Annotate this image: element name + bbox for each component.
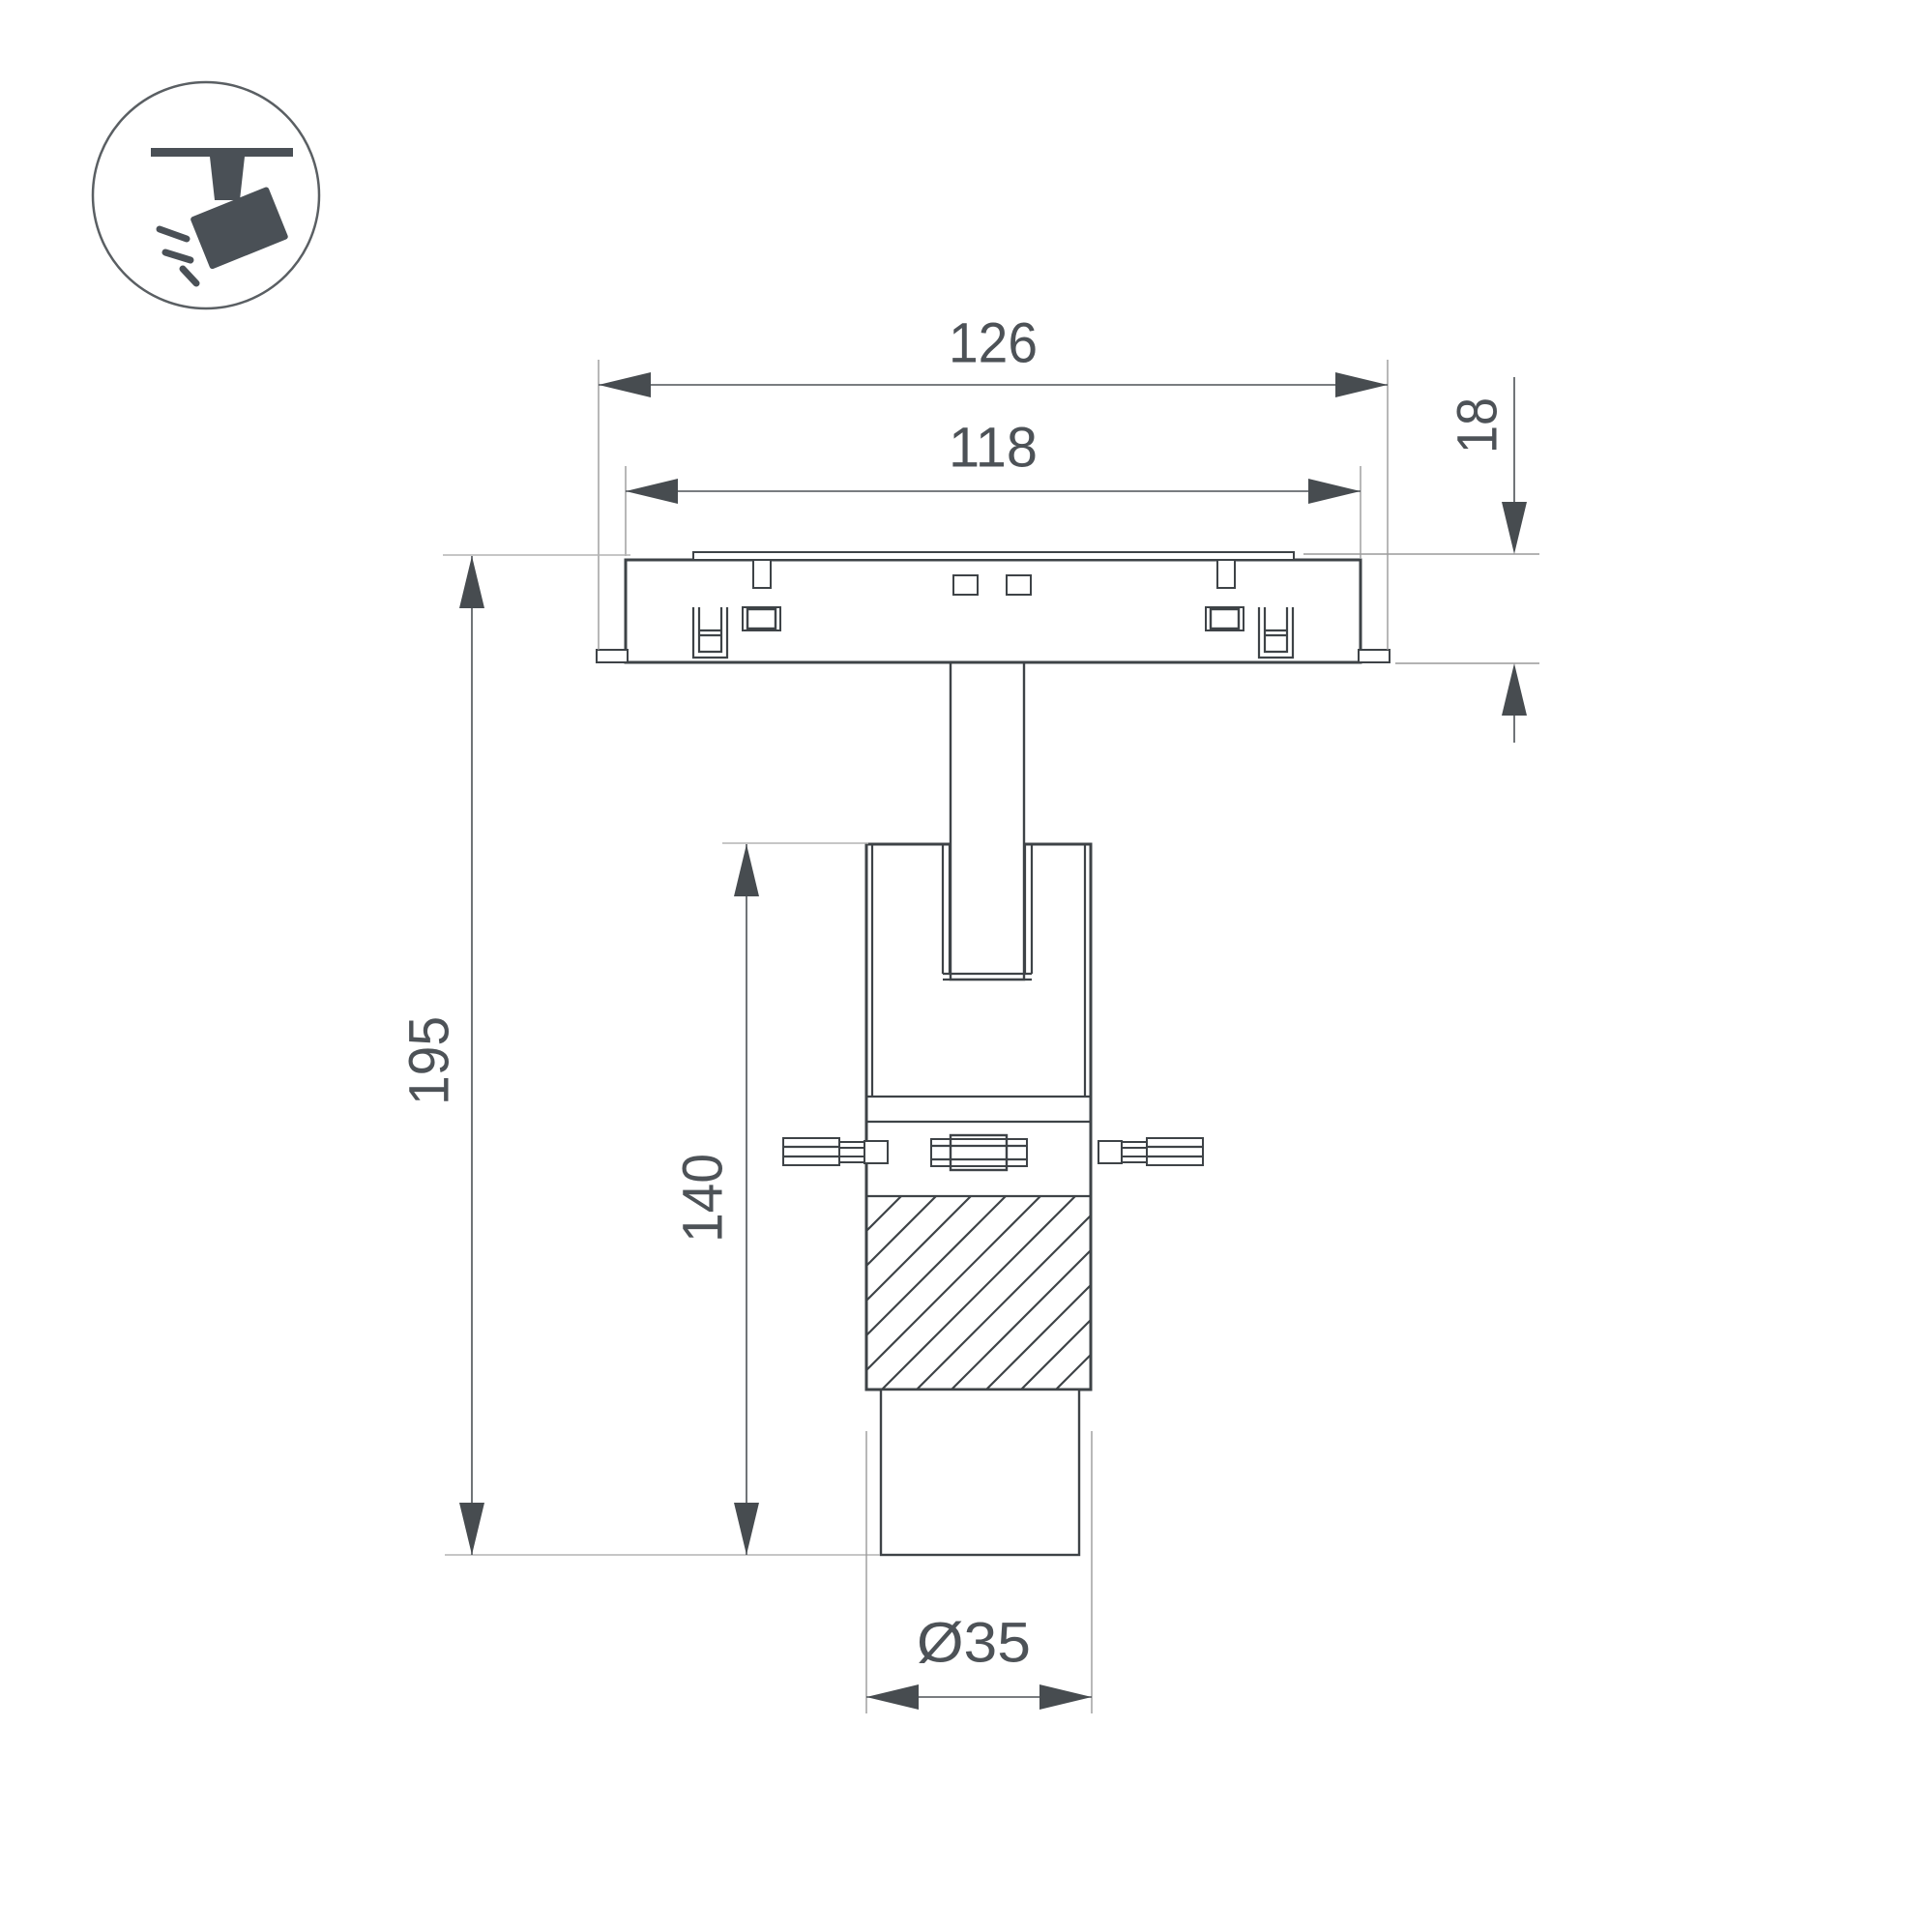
pivot-stem xyxy=(951,662,1024,980)
clamp-block xyxy=(931,1135,1027,1170)
adapter-tab-right xyxy=(1217,560,1235,588)
adapter-foot-left xyxy=(597,650,628,662)
adapter-vent-left xyxy=(953,575,978,595)
thumbscrew-left xyxy=(783,1138,888,1165)
arrowhead xyxy=(1502,502,1527,554)
dimension-118: 118 xyxy=(626,417,1361,505)
track-adapter xyxy=(597,552,1390,662)
track-light-dimension-drawing: 126 118 18 195 140 Ø35 xyxy=(0,0,1932,1932)
technical-drawing-page: 126 118 18 195 140 Ø35 xyxy=(0,0,1932,1932)
arrowhead xyxy=(626,479,678,504)
dim-label-18: 18 xyxy=(1447,397,1509,454)
arrowhead xyxy=(866,1684,919,1710)
thumbscrew-right xyxy=(1098,1138,1203,1165)
dim-label-195: 195 xyxy=(398,1016,461,1105)
track-spotlight-icon xyxy=(93,82,319,308)
icon-circle xyxy=(93,82,319,308)
arrowhead xyxy=(459,1503,484,1555)
arrowhead xyxy=(1308,479,1361,504)
dim-label-118: 118 xyxy=(949,417,1038,480)
dim-label-d35: Ø35 xyxy=(917,1612,1031,1675)
arrowhead xyxy=(734,844,759,896)
icon-ray-1 xyxy=(160,229,187,239)
lens-cylinder xyxy=(881,1390,1079,1555)
icon-ray-2 xyxy=(165,252,190,260)
dimension-d35: Ø35 xyxy=(866,1612,1092,1711)
arrowhead xyxy=(1502,663,1527,716)
arrowhead xyxy=(599,372,651,397)
dimension-126: 126 xyxy=(599,312,1388,398)
icon-light-head xyxy=(190,187,288,270)
arrowhead xyxy=(459,556,484,608)
dimension-140: 140 xyxy=(672,844,760,1555)
adapter-foot-right xyxy=(1359,650,1390,662)
icon-ray-3 xyxy=(183,269,196,283)
arrowhead xyxy=(1335,372,1388,397)
icon-mount-stem xyxy=(210,157,245,200)
adapter-top-plate xyxy=(693,552,1294,560)
dim-label-126: 126 xyxy=(949,312,1038,375)
arrowhead xyxy=(734,1503,759,1555)
adapter-body xyxy=(626,560,1361,662)
dim-label-140: 140 xyxy=(672,1154,735,1243)
arrowhead xyxy=(1039,1684,1092,1710)
dimension-18: 18 xyxy=(1447,377,1528,743)
dimension-195: 195 xyxy=(398,556,485,1555)
icon-track-bar xyxy=(151,148,293,157)
adapter-tab-left xyxy=(753,560,771,588)
adapter-vent-right xyxy=(1007,575,1031,595)
